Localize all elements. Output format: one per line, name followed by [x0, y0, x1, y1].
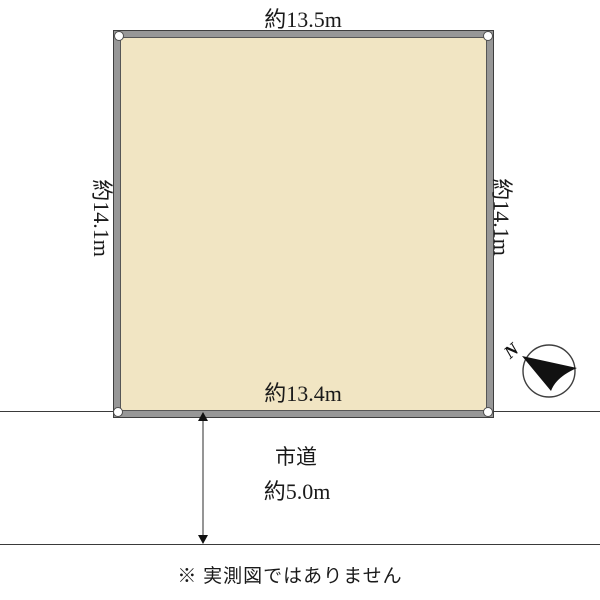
north-label: N [499, 338, 523, 363]
survey-corner-marker-bottom-left [113, 407, 123, 417]
road-width-arrowhead-down [198, 535, 208, 544]
dimension-label-left: 約14.1m [90, 179, 112, 257]
north-compass: N [498, 334, 588, 406]
disclaimer-note: ※ 実測図ではありません [177, 561, 402, 588]
dimension-label-bottom: 約13.4m [264, 383, 342, 405]
dimension-label-right: 約14.1m [490, 178, 512, 256]
survey-corner-marker-bottom-right [483, 407, 493, 417]
road-width-arrow-line [203, 419, 204, 537]
compass-needle-icon [522, 356, 577, 391]
road-name-label: 市道 [275, 446, 317, 469]
survey-corner-marker-top-left [114, 31, 124, 41]
road-width-label: 約5.0m [264, 480, 331, 504]
dimension-label-top: 約13.5m [264, 9, 342, 31]
survey-corner-marker-top-right [483, 31, 493, 41]
road-edge-line-far [0, 544, 600, 545]
land-plot-parcel [114, 31, 493, 417]
road-width-arrowhead-up [198, 412, 208, 421]
